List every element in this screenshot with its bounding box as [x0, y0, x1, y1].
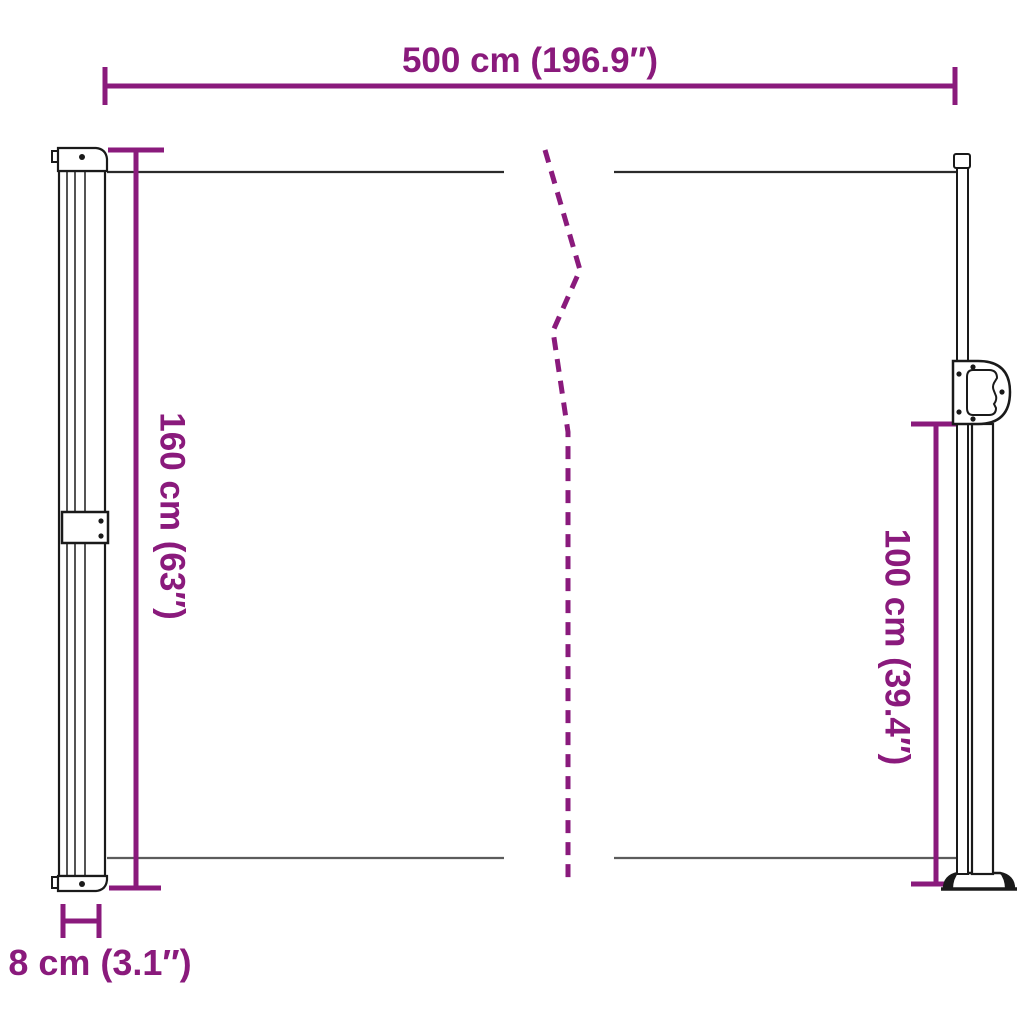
width-dimension-label: 500 cm (196.9″) — [402, 41, 658, 80]
break-dashed-line — [545, 150, 580, 886]
cassette-bottom-screw — [79, 881, 85, 887]
handle-screw-bottom-center — [970, 416, 975, 421]
height-right-dimension-label: 100 cm (39.4″) — [878, 529, 917, 766]
handle-screw-right — [999, 389, 1004, 394]
lead-rail — [957, 168, 968, 874]
handle-screw-top-center — [970, 364, 975, 369]
cassette-top-screw — [79, 154, 85, 160]
bracket-screw-top — [98, 518, 103, 523]
height-left-dimension-label: 160 cm (63″) — [153, 412, 192, 619]
awning-diagram-svg: 500 cm (196.9″) 160 cm (63″) 100 cm (39.… — [0, 0, 1024, 1024]
pull-handle-grip-cutout — [967, 370, 997, 415]
lead-rail-top-cap — [954, 154, 970, 168]
support-pole — [972, 424, 993, 874]
handle-screw-bottom-left — [956, 409, 961, 414]
cassette-assembly — [52, 148, 108, 891]
post-assembly — [941, 154, 1017, 889]
fabric-panel-lines — [107, 172, 957, 858]
width-dimension: 500 cm (196.9″) — [105, 41, 955, 105]
bracket-screw-bottom — [98, 533, 103, 538]
handle-screw-top-left — [956, 371, 961, 376]
height-left-dimension: 160 cm (63″) — [108, 150, 192, 888]
depth-dimension: 8 cm (3.1″) — [8, 904, 191, 983]
product-dimension-diagram: 500 cm (196.9″) 160 cm (63″) 100 cm (39.… — [0, 0, 1024, 1024]
depth-dimension-label: 8 cm (3.1″) — [8, 942, 191, 983]
height-right-dimension: 100 cm (39.4″) — [878, 424, 961, 884]
